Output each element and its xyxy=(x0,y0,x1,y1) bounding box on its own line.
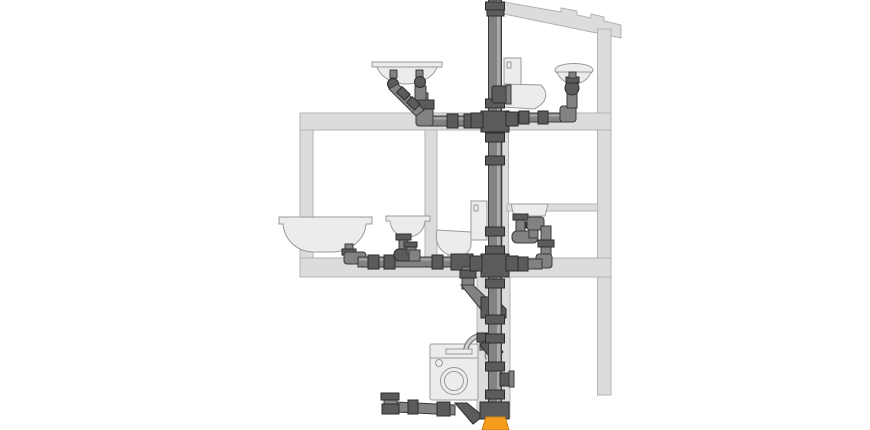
connector-ring xyxy=(506,85,511,104)
right-exterior-wall xyxy=(598,29,612,395)
pipe-coupling xyxy=(517,257,528,271)
pipe-coupling xyxy=(486,362,505,371)
junction-socket-left xyxy=(470,256,482,271)
pipe-coupling xyxy=(486,334,505,343)
pipe-coupling xyxy=(486,227,505,236)
flush-button xyxy=(507,62,511,68)
end-cap xyxy=(382,404,399,414)
double-trap-washbasin xyxy=(372,62,442,84)
basin-outlet-stub xyxy=(569,72,576,78)
pipe-coupling xyxy=(486,315,505,324)
swivel-nut xyxy=(415,77,426,88)
pipe-coupling xyxy=(538,240,554,247)
toilet-cistern xyxy=(471,201,487,240)
pipe-coupling xyxy=(486,133,505,142)
washing-machine xyxy=(430,344,478,400)
toilet-bowl xyxy=(436,230,471,256)
pipe-coupling xyxy=(437,402,450,416)
basin-drop-pipe xyxy=(567,94,577,108)
washbasin-bowl xyxy=(377,67,437,84)
underground-transition-adapter xyxy=(482,417,509,430)
pipe-coupling xyxy=(487,10,504,16)
pipe-coupling xyxy=(486,156,505,165)
pipe-coupling xyxy=(368,255,379,269)
flush-button xyxy=(474,205,478,211)
pipe-coupling xyxy=(486,279,505,288)
junction-body xyxy=(481,111,509,132)
base-junction xyxy=(480,402,509,419)
swivel-nut xyxy=(404,242,417,247)
interior-wall-center xyxy=(425,130,437,258)
vent-stack-top xyxy=(486,2,505,10)
basin-outlet-stub xyxy=(390,70,397,78)
access-cap-ring xyxy=(509,371,514,387)
junction-body xyxy=(481,254,509,277)
pipe-coupling xyxy=(408,400,418,414)
pipe-coupling xyxy=(519,111,529,124)
bathtub xyxy=(279,217,372,252)
swivel-nut xyxy=(396,234,411,240)
pipe-coupling xyxy=(486,390,505,399)
pipe-coupling xyxy=(432,255,443,269)
toilet-middle xyxy=(436,201,487,262)
first-floor-branch-piping xyxy=(342,214,554,318)
drainage-diagram xyxy=(0,0,870,430)
pipe-coupling xyxy=(447,114,458,128)
junction-socket-left xyxy=(471,113,483,128)
pipe-coupling xyxy=(384,255,395,269)
washbasin-shelf xyxy=(372,62,442,67)
pipe-coupling xyxy=(538,111,548,124)
swivel-nut xyxy=(381,393,399,400)
junction-socket-right xyxy=(506,112,518,126)
basin-tailpiece-right xyxy=(415,86,426,100)
pipe-highlight xyxy=(497,1,500,417)
drainage-diagram-canvas xyxy=(0,0,870,430)
trap-drop xyxy=(409,250,420,261)
swivel-nut xyxy=(513,214,528,220)
stack-chase-strip xyxy=(503,130,509,258)
junction-socket-right xyxy=(506,256,518,271)
